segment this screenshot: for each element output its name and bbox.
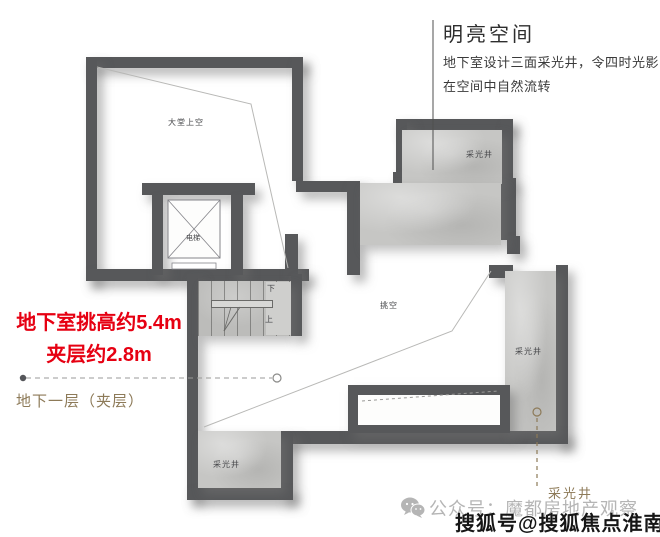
wall-stair-right — [291, 274, 302, 336]
window-box-inner — [358, 395, 500, 425]
label-lightwell-right: 采光井 — [515, 346, 542, 357]
label-lobby-void: 大堂上空 — [168, 117, 204, 128]
label-lightwell-bottom: 采光井 — [213, 459, 240, 470]
wall-elevator-left — [152, 195, 163, 275]
spec-height: 地下室挑高约5.4m — [4, 306, 194, 335]
label-stair-down: 下 — [267, 283, 276, 294]
wall-elevator-top — [142, 183, 255, 195]
wall-strip-right — [556, 265, 568, 444]
wall-mid-vertical — [347, 181, 360, 275]
wall-right-notch — [507, 236, 520, 254]
wall-lobby-top — [86, 57, 303, 68]
spec-mezzanine: 夹层约2.8m — [4, 338, 194, 367]
callout-desc-line2: 在空间中自然流转 — [443, 76, 551, 95]
callout-desc-line1: 地下室设计三面采光井，令四时光影 — [443, 52, 659, 71]
label-stair-up: 上 — [265, 314, 274, 325]
lightwell-top-band — [360, 183, 501, 245]
label-elevator: 电梯 — [186, 233, 200, 243]
wall-lobby-left — [86, 57, 97, 281]
label-lightwell-top: 采光井 — [466, 149, 493, 160]
wechat-icon — [400, 496, 426, 520]
floorplan-page: 明亮空间 地下室设计三面采光井，令四时光影 在空间中自然流转 地下室挑高约5.4… — [0, 0, 660, 537]
wall-right-mid — [501, 178, 516, 240]
callout-title: 明亮空间 — [443, 18, 535, 47]
wall-lobby-right-upper — [292, 57, 303, 181]
wall-lobby-right-lower — [285, 234, 298, 276]
label-void: 挑空 — [380, 300, 398, 311]
floor-label: 地下一层（夹层） — [16, 390, 144, 411]
wall-elevator-right — [231, 195, 243, 275]
wall-topwell-right — [501, 119, 513, 185]
wall-topwell-top — [396, 119, 512, 130]
wall-bottomwell-bottom — [187, 488, 293, 500]
watermark-sohu: 搜狐号@搜狐焦点淮南站 — [455, 507, 660, 536]
stair-handrail — [211, 300, 273, 308]
